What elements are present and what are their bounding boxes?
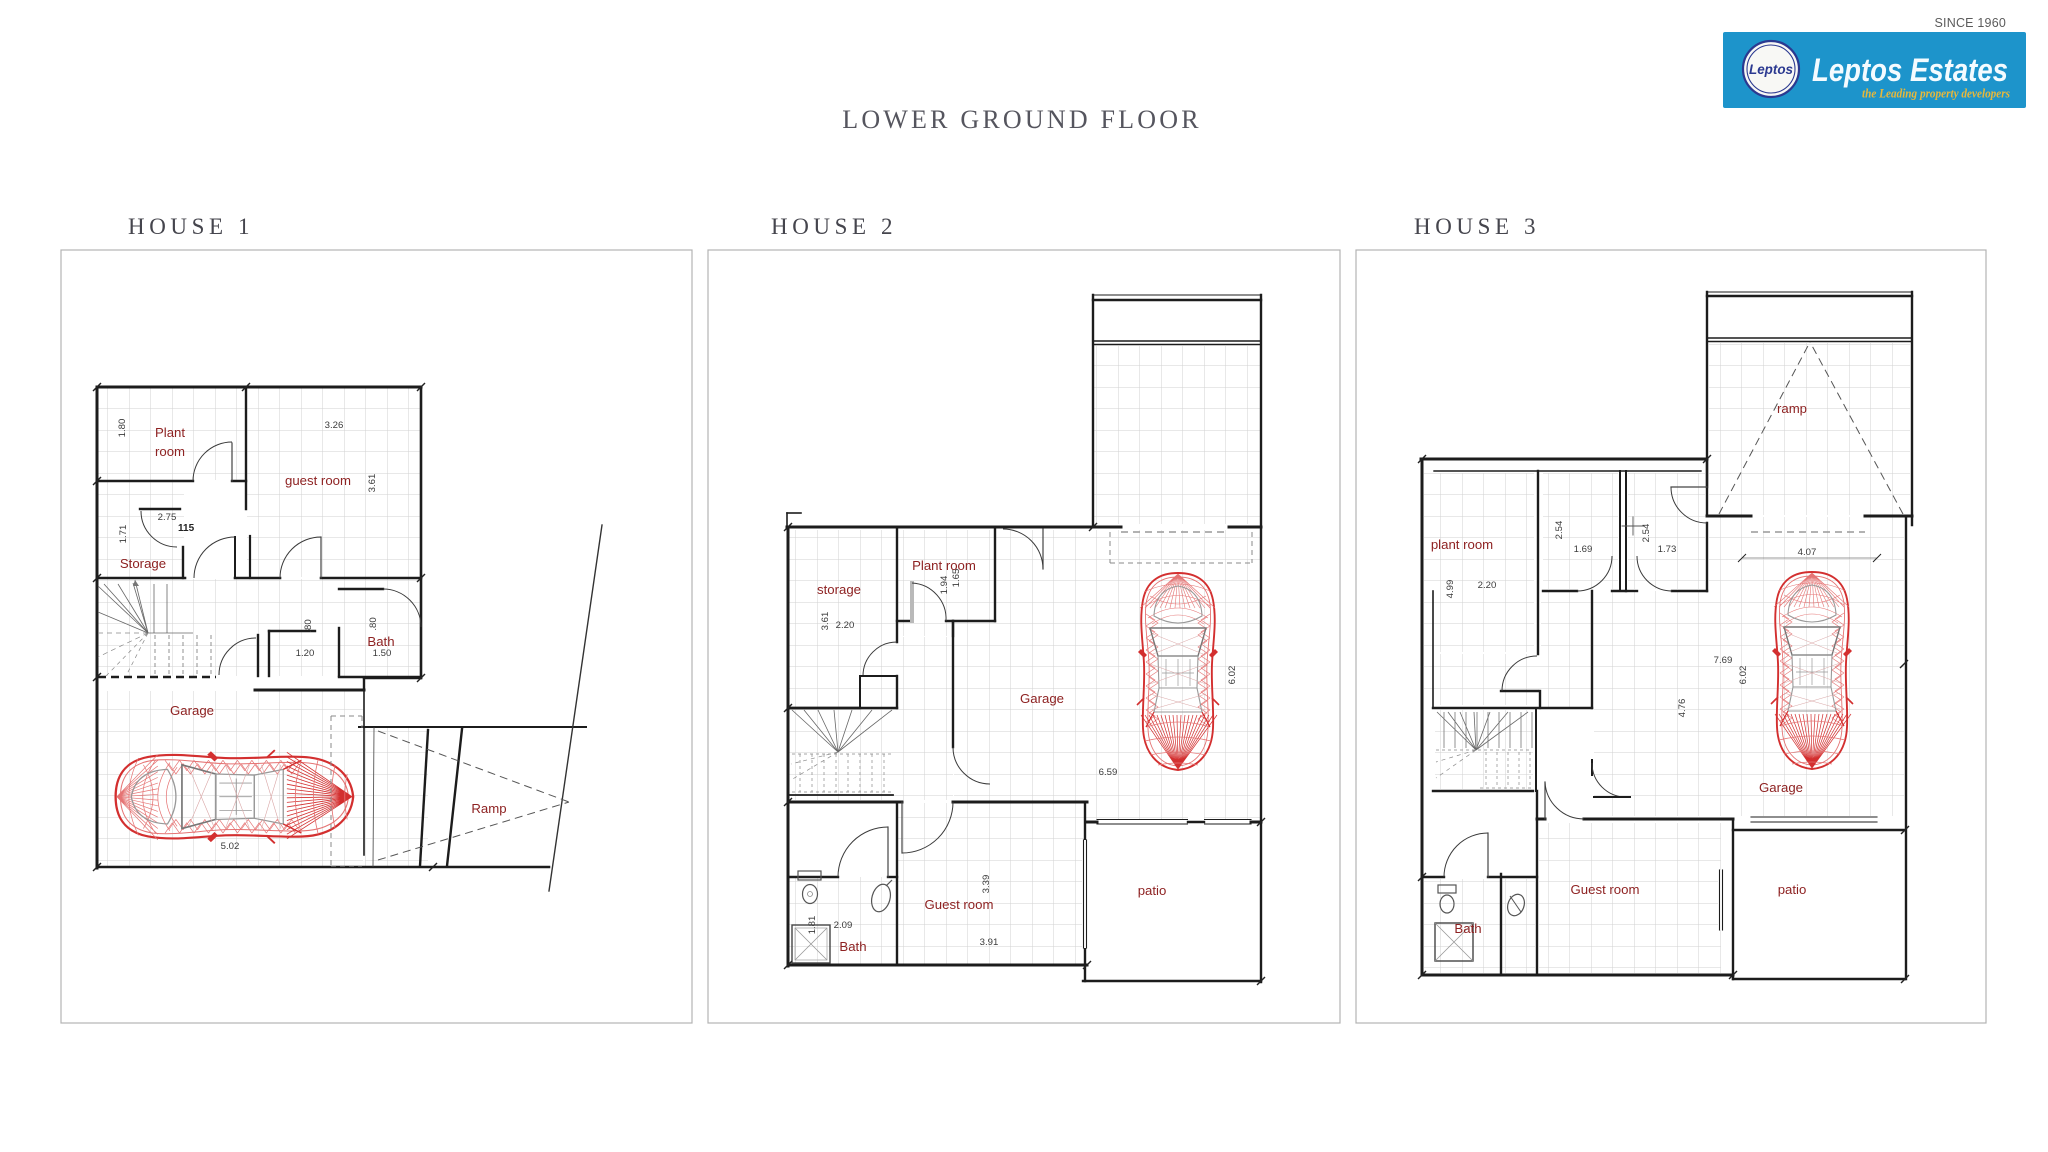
svg-text:3.39: 3.39 <box>981 875 992 894</box>
svg-text:Garage: Garage <box>1020 691 1064 706</box>
svg-text:Plant: Plant <box>155 425 185 440</box>
svg-text:1.69: 1.69 <box>1574 544 1593 555</box>
svg-text:Bath: Bath <box>367 634 394 649</box>
svg-text:3.61: 3.61 <box>820 612 831 631</box>
svg-text:3.91: 3.91 <box>980 937 999 948</box>
svg-text:6.02: 6.02 <box>1738 666 1749 685</box>
svg-text:plant room: plant room <box>1431 537 1493 552</box>
svg-text:2.09: 2.09 <box>834 920 853 931</box>
svg-text:the Leading property developer: the Leading property developers <box>1862 86 2010 101</box>
svg-text:Leptos: Leptos <box>1749 61 1793 77</box>
svg-text:2.20: 2.20 <box>1478 580 1497 591</box>
svg-text:5.02: 5.02 <box>221 841 240 852</box>
svg-text:1.65: 1.65 <box>951 569 962 588</box>
svg-text:Storage: Storage <box>120 556 166 571</box>
svg-text:1.50: 1.50 <box>373 648 392 659</box>
svg-text:6.02: 6.02 <box>1227 666 1238 685</box>
svg-text:Bath: Bath <box>1454 921 1481 936</box>
svg-text:1.71: 1.71 <box>118 525 129 544</box>
svg-text:ramp: ramp <box>1777 401 1807 416</box>
svg-text:4.07: 4.07 <box>1798 547 1817 558</box>
svg-text:115: 115 <box>178 523 195 534</box>
svg-text:3.26: 3.26 <box>325 420 344 431</box>
svg-text:1.73: 1.73 <box>1658 544 1677 555</box>
svg-text:2.75: 2.75 <box>158 512 177 523</box>
svg-text:HOUSE 1: HOUSE 1 <box>128 214 254 239</box>
svg-text:1.81: 1.81 <box>807 916 818 935</box>
svg-text:.80: .80 <box>368 617 379 630</box>
svg-text:7.69: 7.69 <box>1714 655 1733 666</box>
svg-text:Guest room: Guest room <box>925 897 994 912</box>
svg-text:Plant room: Plant room <box>912 558 976 573</box>
svg-text:guest room: guest room <box>285 473 351 488</box>
svg-text:Garage: Garage <box>1759 780 1803 795</box>
svg-text:LOWER GROUND FLOOR: LOWER GROUND FLOOR <box>842 105 1201 134</box>
svg-text:6.59: 6.59 <box>1099 767 1118 778</box>
svg-text:Leptos Estates: Leptos Estates <box>1812 52 2008 88</box>
svg-text:Bath: Bath <box>839 939 866 954</box>
svg-text:HOUSE 3: HOUSE 3 <box>1414 214 1540 239</box>
svg-text:room: room <box>155 444 185 459</box>
svg-text:4.99: 4.99 <box>1445 580 1456 599</box>
svg-text:2.54: 2.54 <box>1641 523 1652 542</box>
svg-text:1.80: 1.80 <box>117 419 128 438</box>
svg-text:Ramp: Ramp <box>471 801 506 816</box>
svg-text:3.61: 3.61 <box>367 474 378 493</box>
svg-text:4.76: 4.76 <box>1677 699 1688 718</box>
svg-text:1.20: 1.20 <box>296 648 315 659</box>
svg-text:2.54: 2.54 <box>1554 520 1565 539</box>
svg-text:Garage: Garage <box>170 703 214 718</box>
svg-text:Guest room: Guest room <box>1571 882 1640 897</box>
svg-text:.80: .80 <box>303 619 314 632</box>
svg-text:HOUSE 2: HOUSE 2 <box>771 214 897 239</box>
svg-text:SINCE 1960: SINCE 1960 <box>1935 16 2006 30</box>
svg-text:1.94: 1.94 <box>939 575 950 594</box>
svg-text:patio: patio <box>1138 883 1167 898</box>
svg-text:storage: storage <box>817 582 861 597</box>
svg-text:patio: patio <box>1778 882 1807 897</box>
svg-text:2.20: 2.20 <box>836 620 855 631</box>
